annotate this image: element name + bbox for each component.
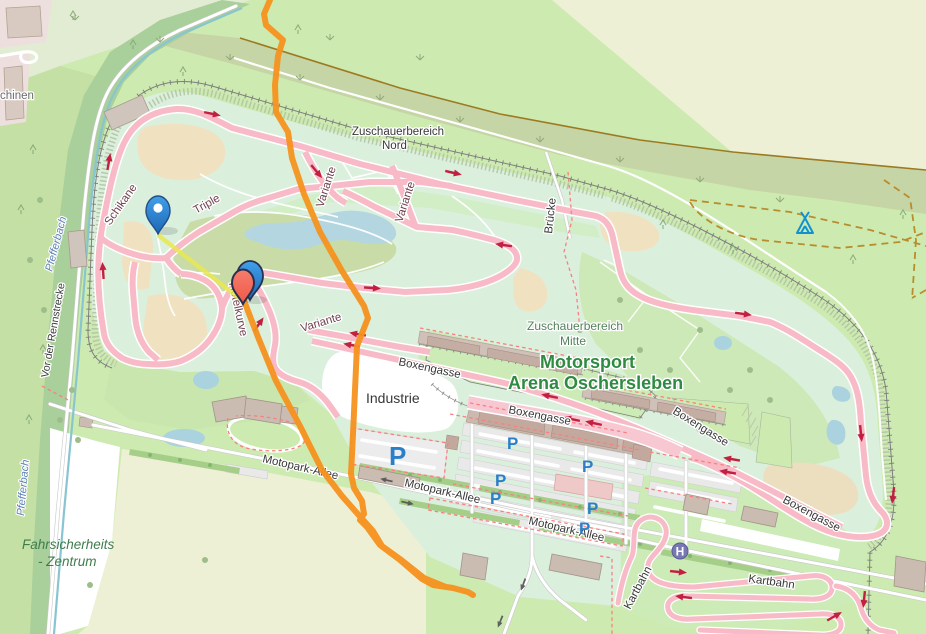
svg-text:Industrie: Industrie [366, 390, 420, 406]
svg-text:Mitte: Mitte [560, 334, 586, 348]
svg-text:P: P [507, 434, 518, 453]
svg-text:P: P [389, 441, 406, 471]
svg-text:Fahrsicherheits: Fahrsicherheits [22, 537, 115, 552]
svg-text:Motorsport: Motorsport [540, 352, 635, 372]
svg-text:H: H [676, 545, 685, 559]
svg-text:Nord: Nord [382, 140, 407, 152]
svg-text:P: P [582, 457, 593, 476]
svg-text:P: P [587, 499, 598, 518]
svg-text:P: P [490, 489, 501, 508]
svg-text:- Zentrum: - Zentrum [38, 554, 97, 569]
svg-text:P: P [495, 471, 506, 490]
svg-text:chinen: chinen [0, 90, 34, 102]
svg-text:P: P [579, 519, 590, 538]
svg-text:Arena Oschersleben: Arena Oschersleben [508, 373, 683, 393]
svg-text:Zuschauerbereich: Zuschauerbereich [527, 319, 623, 333]
svg-text:Zuschauerbereich: Zuschauerbereich [352, 126, 444, 138]
